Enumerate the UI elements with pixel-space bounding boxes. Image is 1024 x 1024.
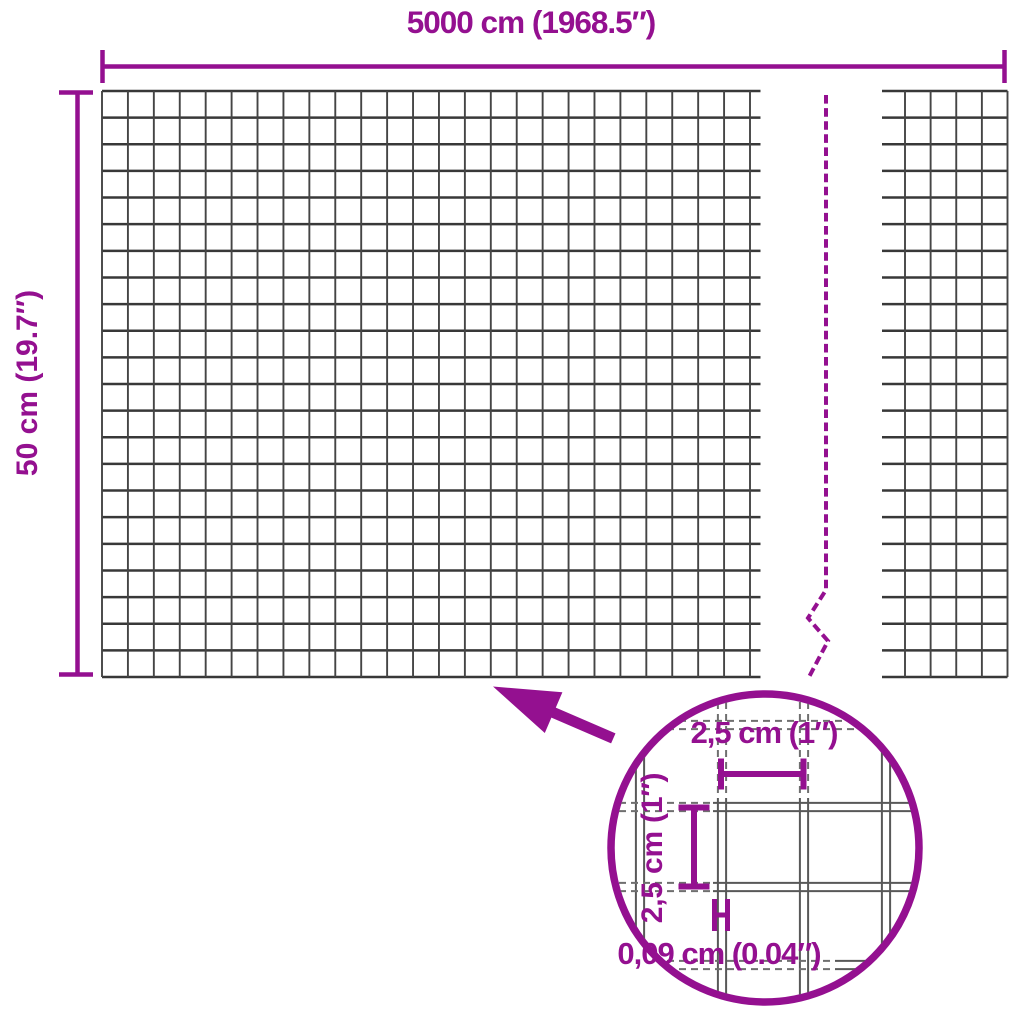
svg-text:50 cm (19.7″): 50 cm (19.7″) [11,290,44,476]
svg-text:5000 cm (1968.5″): 5000 cm (1968.5″) [407,4,656,40]
svg-text:2,5 cm (1″): 2,5 cm (1″) [636,773,669,924]
svg-text:0,09 cm (0.04″): 0,09 cm (0.04″) [617,936,820,971]
svg-text:2,5 cm (1″): 2,5 cm (1″) [691,715,838,750]
